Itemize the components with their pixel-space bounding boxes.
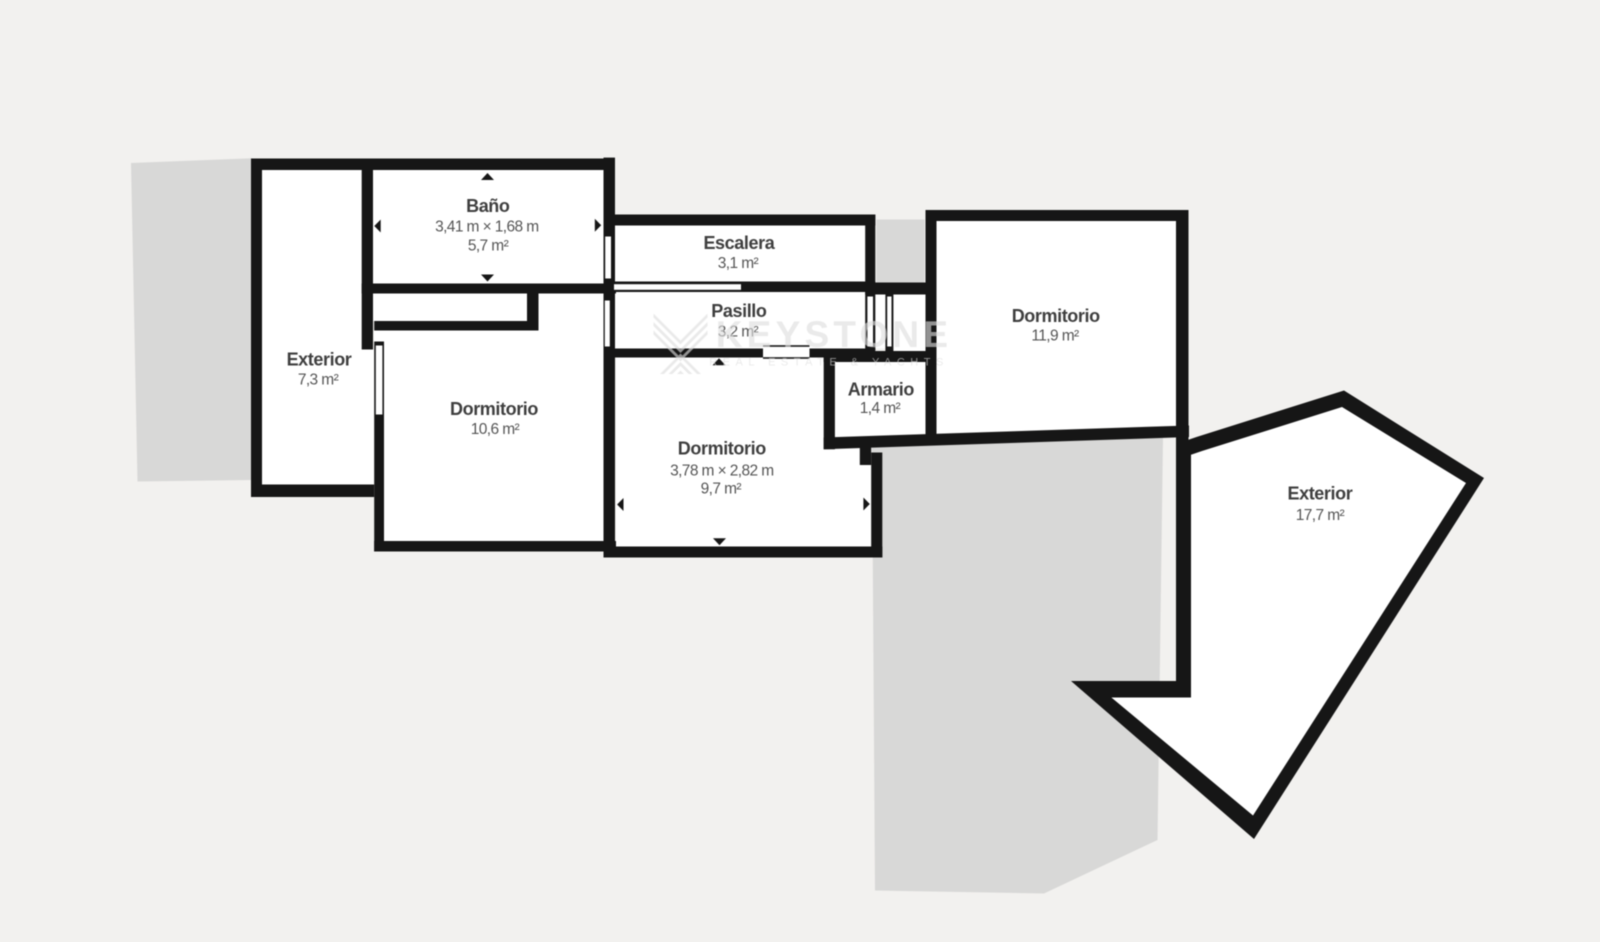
svg-text:10,6 m²: 10,6 m²	[471, 421, 520, 438]
svg-text:3,1 m²: 3,1 m²	[718, 255, 759, 272]
svg-text:3,78 m × 2,82 m: 3,78 m × 2,82 m	[670, 463, 773, 480]
svg-text:Dormitorio: Dormitorio	[678, 438, 766, 458]
svg-text:Escalera: Escalera	[703, 233, 775, 253]
svg-text:3,41 m × 1,68 m: 3,41 m × 1,68 m	[435, 219, 538, 236]
svg-text:11,9 m²: 11,9 m²	[1031, 328, 1079, 345]
svg-text:Armario: Armario	[848, 379, 915, 399]
svg-text:Baño: Baño	[466, 196, 510, 216]
svg-text:1,4 m²: 1,4 m²	[860, 400, 901, 417]
svg-text:Exterior: Exterior	[1287, 484, 1352, 504]
svg-text:REAL ESTATE & YACHTS: REAL ESTATE & YACHTS	[709, 357, 949, 369]
svg-text:Dormitorio: Dormitorio	[450, 399, 538, 419]
svg-text:Dormitorio: Dormitorio	[1012, 306, 1100, 326]
svg-text:9,7 m²: 9,7 m²	[701, 481, 742, 498]
svg-text:7,3 m²: 7,3 m²	[298, 372, 339, 389]
svg-text:Exterior: Exterior	[287, 349, 352, 369]
svg-text:17,7 m²: 17,7 m²	[1296, 507, 1345, 524]
svg-text:KEYSTONE: KEYSTONE	[716, 314, 952, 355]
svg-text:5,7 m²: 5,7 m²	[468, 237, 509, 254]
